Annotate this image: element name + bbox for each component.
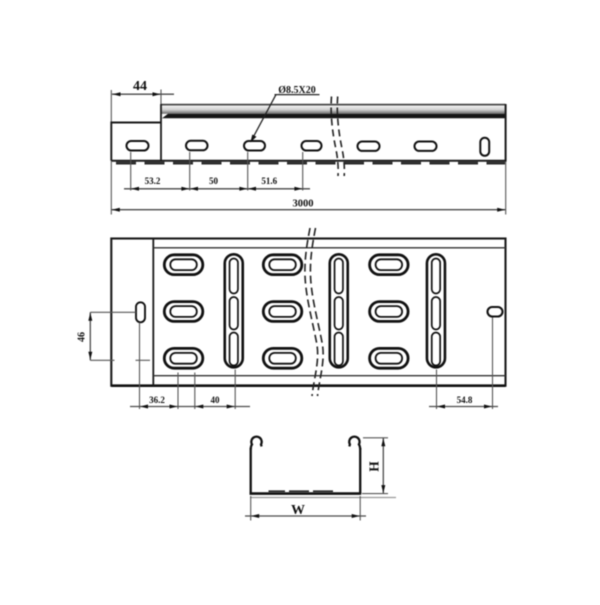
- svg-text:54.8: 54.8: [457, 395, 473, 405]
- svg-text:46: 46: [77, 332, 88, 342]
- svg-text:51.6: 51.6: [261, 176, 277, 186]
- svg-text:50: 50: [209, 176, 219, 186]
- svg-text:3000: 3000: [293, 199, 314, 210]
- svg-text:44: 44: [133, 79, 147, 94]
- svg-text:53.2: 53.2: [145, 176, 161, 186]
- svg-text:W: W: [291, 503, 305, 518]
- svg-text:H: H: [367, 461, 382, 472]
- svg-text:40: 40: [211, 395, 221, 405]
- svg-text:36.2: 36.2: [149, 395, 165, 405]
